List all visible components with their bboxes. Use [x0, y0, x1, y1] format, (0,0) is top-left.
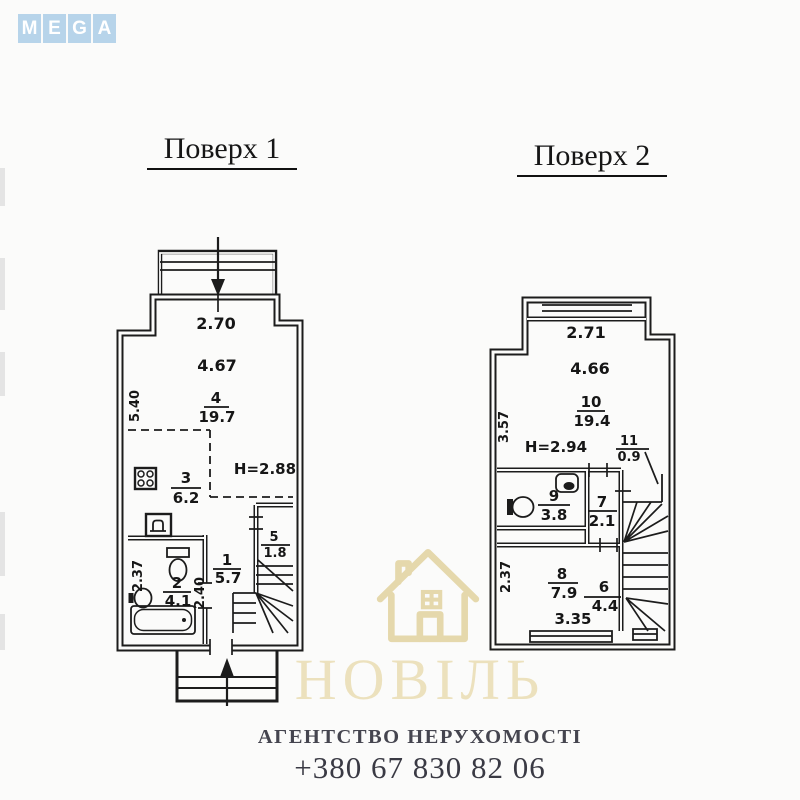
ceiling-height-label: Н=2.88: [234, 460, 296, 478]
floor1-title: Поверх 1: [147, 132, 297, 170]
floor2-balcony: [527, 305, 646, 319]
room-area: 2.1: [589, 512, 616, 530]
floor2-title: Поверх 2: [517, 139, 667, 177]
dimension-label: 5.40: [128, 390, 143, 422]
logo-tile: E: [43, 14, 66, 43]
dimension-label: 2.37: [499, 561, 514, 593]
room-number: 2: [172, 574, 182, 592]
logo-tile: A: [93, 14, 116, 43]
floor2-stairs: [623, 502, 668, 631]
floor2-labels: 2.71 4.66 3.57 Н=2.94 2.37 3.35 10 19.4 …: [497, 323, 649, 628]
room-number: 5: [269, 530, 278, 545]
room-number: 9: [549, 487, 559, 505]
bathtub-icon: [131, 606, 195, 634]
room-area: 0.9: [617, 450, 640, 465]
toilet-icon: [556, 474, 578, 492]
room-number: 4: [211, 389, 221, 407]
dimension-label: 4.66: [570, 359, 609, 378]
kitchen-sink-icon: [146, 514, 171, 536]
floor1-door-opening: [210, 642, 233, 653]
dimension-label: 2.37: [131, 560, 146, 592]
logo-tile: G: [68, 14, 91, 43]
room-area: 19.7: [198, 408, 235, 426]
room-area: 4.4: [592, 597, 619, 615]
scanned-floor-plan-page: M E G A Поверх 1 Поверх 2 НОВІЛЬ АГЕНТСТ…: [0, 0, 800, 800]
room-area: 4.1: [165, 592, 192, 610]
floor1-plan: 2.70 4.67 5.40 Н=2.88 2.37 2.40 4 19.7 3…: [120, 237, 300, 706]
ceiling-height-label: Н=2.94: [525, 438, 587, 456]
room-number: 10: [581, 393, 602, 411]
dimension-label: 2.71: [566, 323, 605, 342]
room-number: 8: [557, 565, 567, 583]
mega-logo: M E G A: [18, 14, 116, 43]
stove-icon: [135, 468, 156, 489]
entry-arrow-up-icon: [220, 658, 234, 706]
room-number: 1: [222, 551, 232, 569]
floor1-stairs: [233, 560, 293, 633]
washbasin-icon: [507, 497, 534, 517]
room-area: 19.4: [573, 412, 610, 430]
room-area: 7.9: [551, 584, 578, 602]
room-area: 5.7: [215, 569, 242, 587]
dimension-label: 2.70: [196, 314, 235, 333]
room-area: 3.8: [541, 506, 568, 524]
room-area: 6.2: [173, 489, 200, 507]
room-number: 6: [599, 578, 609, 596]
dimension-label: 3.57: [497, 411, 512, 443]
floor-plans-drawing: 2.70 4.67 5.40 Н=2.88 2.37 2.40 4 19.7 3…: [0, 0, 800, 800]
logo-tile: M: [18, 14, 41, 43]
dimension-label: 4.67: [197, 356, 236, 375]
room-area: 1.8: [263, 546, 286, 561]
floor2-plan: 2.71 4.66 3.57 Н=2.94 2.37 3.35 10 19.4 …: [493, 300, 672, 647]
dimension-label: 2.40: [193, 577, 208, 609]
floor2-window-ledges: [530, 629, 657, 642]
room-number: 7: [597, 493, 607, 511]
room-number: 3: [181, 469, 191, 487]
room-number: 11: [620, 434, 638, 449]
entry-arrow-down-icon: [211, 237, 225, 312]
dimension-label: 3.35: [554, 610, 591, 628]
